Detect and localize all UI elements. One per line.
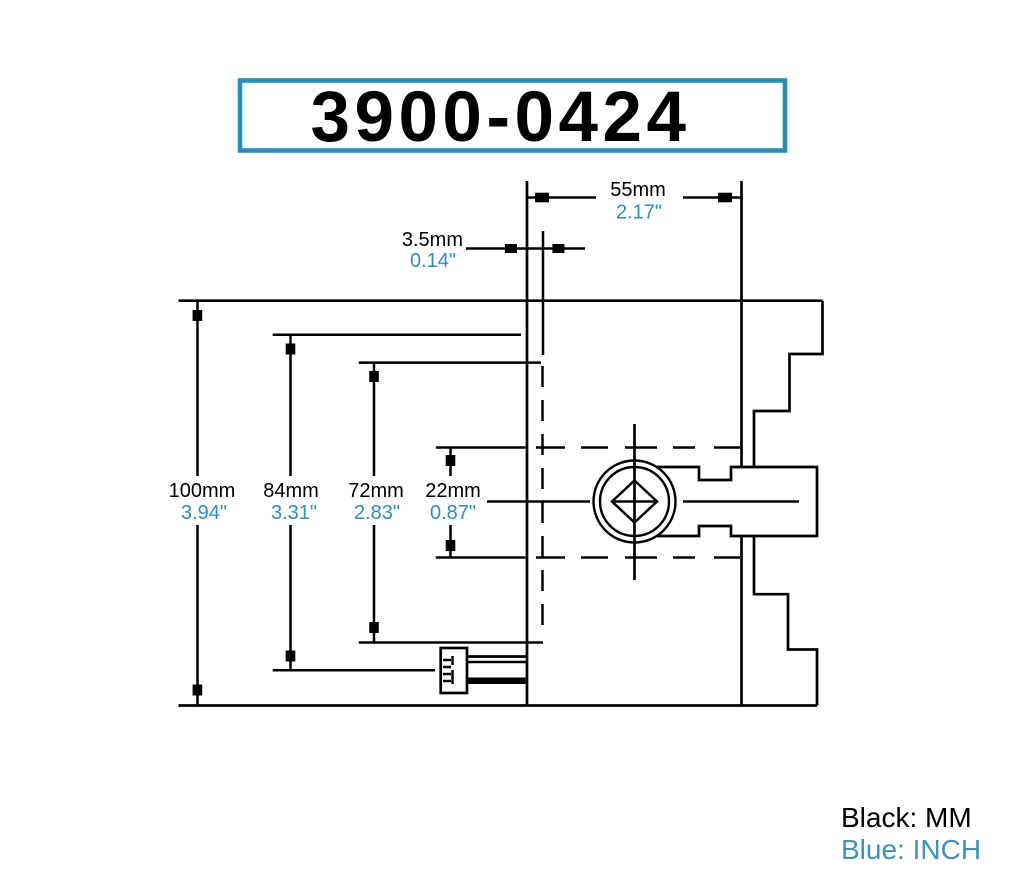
svg-text:0.87": 0.87" [430,502,476,524]
svg-text:100mm: 100mm [169,480,236,502]
svg-text:Black: MM: Black: MM [841,802,972,833]
svg-text:55mm: 55mm [610,179,666,201]
svg-text:72mm: 72mm [348,480,404,502]
svg-text:3.94": 3.94" [181,502,227,524]
svg-text:3900-0424: 3900-0424 [310,78,690,157]
svg-text:Blue: INCH: Blue: INCH [841,834,981,865]
svg-text:3.31": 3.31" [271,502,317,524]
svg-text:84mm: 84mm [263,480,319,502]
svg-text:22mm: 22mm [425,480,481,502]
svg-text:0.14": 0.14" [410,250,456,272]
svg-text:2.17": 2.17" [616,202,662,224]
svg-text:3.5mm: 3.5mm [402,229,463,251]
svg-text:2.83": 2.83" [354,502,400,524]
